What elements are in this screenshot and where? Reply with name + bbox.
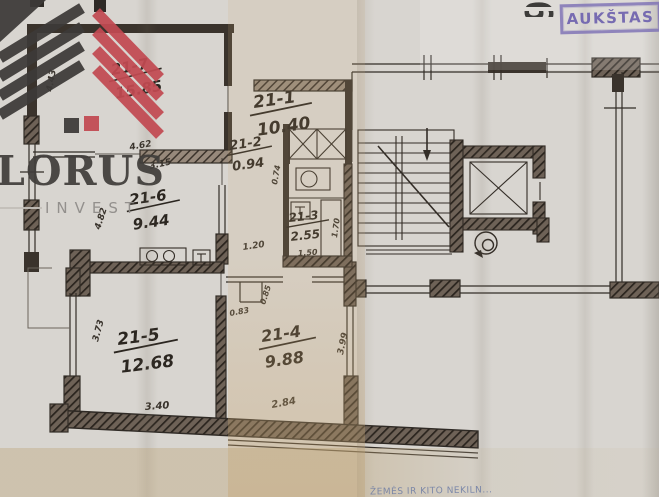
elevator-icon: [450, 140, 549, 252]
dim-3-40: 3.40: [144, 400, 169, 413]
room-label-21-1: 21-1 10.40: [247, 85, 316, 141]
logo-square-dark: [64, 118, 79, 133]
room-area: 0.94: [231, 155, 265, 174]
logo-square-red: [84, 116, 99, 131]
dim-0-74: 0.74: [270, 164, 282, 185]
balcony-icon: [28, 268, 70, 328]
logo-brand-text: LORUS: [0, 147, 172, 195]
floor-stamp-label: AUKŠTAS: [566, 8, 654, 28]
room-label-21-4: 21-4 9.88: [256, 320, 320, 373]
dim-0-85: 0.85: [258, 284, 273, 306]
logo-rule: [0, 207, 42, 209]
dim-1-70: 1.70: [330, 217, 342, 238]
room-label-21-3: 21-3 2.55: [285, 207, 331, 244]
floor-stamp-box: AUKŠTAS: [560, 2, 659, 35]
dim-1-20: 1.20: [242, 240, 265, 253]
logo-building-icon: [0, 0, 172, 145]
room-label-21-2: 21-2 0.94: [225, 133, 275, 175]
room-label-21-5: 21-5 12.68: [111, 323, 181, 379]
dim-1-50: 1.50: [298, 248, 319, 258]
room-area: 12.68: [120, 351, 176, 377]
dim-3-73: 3.73: [91, 319, 106, 343]
room-area: 9.88: [264, 347, 306, 371]
dim-0-83: 0.83: [229, 306, 250, 318]
scanned-floor-plan-page: 21-7 15.85 21-1 10.40 21-2 0.94 21-3 2.5…: [0, 0, 659, 497]
room-area: 2.55: [290, 227, 321, 244]
floor-number-stamp: 6: [516, 0, 560, 23]
logo-tagline-text: INVEST: [45, 199, 141, 217]
garbage-chute-icon: [474, 232, 497, 258]
dim-2-84: 2.84: [271, 396, 297, 411]
lorus-invest-logo: LORUS INVEST: [0, 0, 172, 224]
dim-3-99: 3.99: [336, 332, 350, 356]
room-area: 10.40: [256, 113, 312, 140]
toilet-icon: [296, 168, 330, 190]
staircase-icon: [358, 128, 454, 254]
room-id: 21-5: [116, 325, 161, 350]
